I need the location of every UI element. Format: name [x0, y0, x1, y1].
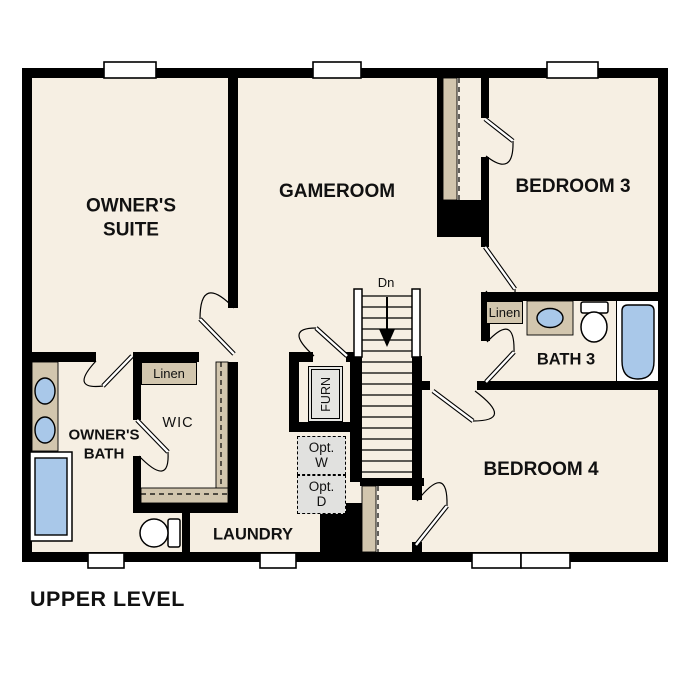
bath3-sink	[537, 309, 563, 328]
wic-linen-closet: Linen	[141, 362, 197, 385]
optional-dryer-box: Opt. D	[297, 475, 346, 514]
bath3-label: BATH 3	[537, 350, 595, 371]
optional-washer-label-line2: W	[315, 456, 328, 471]
bath3-toilet	[581, 302, 608, 342]
window-bedroom4-right	[521, 553, 570, 568]
bath3-linen-closet: Linen	[486, 301, 523, 324]
owners-suite-label: OWNER'S SUITE	[86, 194, 176, 242]
optional-washer-box: Opt. W	[297, 436, 346, 475]
furnace-unit: FURN	[308, 366, 343, 422]
page-title: UPPER LEVEL	[30, 587, 185, 612]
stairs-railing-left	[354, 289, 362, 357]
owners-bath-label-line2: BATH	[68, 445, 139, 464]
window-owners-bath	[88, 553, 124, 568]
owners-bath-sink-2	[35, 417, 55, 443]
window-laundry	[260, 553, 296, 568]
stairs-dn-label: Dn	[378, 275, 395, 291]
owners-bath-label: OWNER'S BATH	[68, 426, 139, 464]
floor-plan-drawing	[0, 0, 687, 687]
window-gameroom	[313, 62, 361, 78]
wic-shelf-bottom	[141, 488, 228, 503]
furnace-unit-inner: FURN	[311, 369, 340, 419]
window-owners-suite	[104, 62, 156, 78]
bedroom3-closet-shelf	[443, 78, 457, 200]
optional-washer-label-line1: Opt.	[309, 441, 335, 456]
optional-dryer-label-line1: Opt.	[309, 480, 335, 495]
understair-closet-shelf	[362, 486, 376, 552]
owners-bath-toilet	[140, 519, 180, 547]
floor-plan: OWNER'S SUITE GAMEROOM BEDROOM 3 BATH 3 …	[0, 0, 687, 687]
optional-dryer-label-line2: D	[317, 495, 327, 510]
furnace-label: FURN	[319, 377, 333, 412]
window-bedroom3	[547, 62, 598, 78]
bath3-bathtub	[622, 305, 654, 379]
owners-suite-label-line1: OWNER'S	[86, 194, 176, 218]
owners-bath-sink-1	[35, 378, 55, 404]
owners-bath-label-line1: OWNER'S	[68, 426, 139, 445]
laundry-label: LAUNDRY	[213, 525, 293, 546]
wic-label: WIC	[162, 414, 193, 432]
bedroom4-label: BEDROOM 4	[483, 458, 598, 482]
gameroom-label: GAMEROOM	[279, 180, 395, 204]
wic-shelf-right	[216, 362, 228, 503]
owners-suite-label-line2: SUITE	[86, 218, 176, 242]
bedroom3-label: BEDROOM 3	[515, 175, 630, 199]
window-bedroom4-left	[472, 553, 521, 568]
owners-bath-shower	[30, 452, 72, 541]
stairs-railing-right	[412, 289, 420, 357]
